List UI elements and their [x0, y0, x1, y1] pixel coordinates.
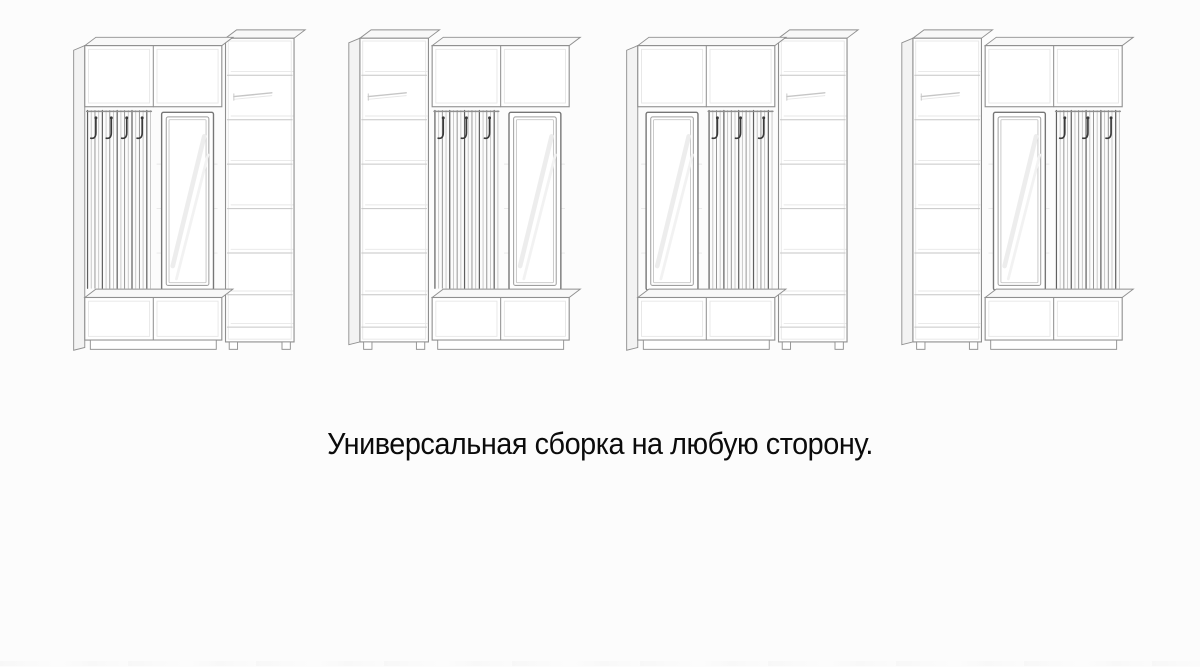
caption-text: Универсальная сборка на любую сторону. — [42, 426, 1158, 462]
wardrobe-drawing-2 — [334, 16, 584, 398]
product-diagram-page: Универсальная сборка на любую сторону. — [0, 0, 1200, 667]
wardrobe-unit-2 — [334, 16, 584, 398]
wardrobe-unit-3 — [610, 16, 860, 398]
wardrobe-drawing-1 — [57, 16, 307, 398]
scan-artifact-strip — [0, 661, 1200, 666]
wardrobe-unit-4 — [887, 16, 1137, 398]
wardrobe-drawing-4 — [887, 16, 1137, 398]
wardrobe-drawing-3 — [610, 16, 860, 398]
wardrobe-unit-1 — [57, 16, 307, 398]
assembly-variants-row — [57, 16, 1137, 398]
